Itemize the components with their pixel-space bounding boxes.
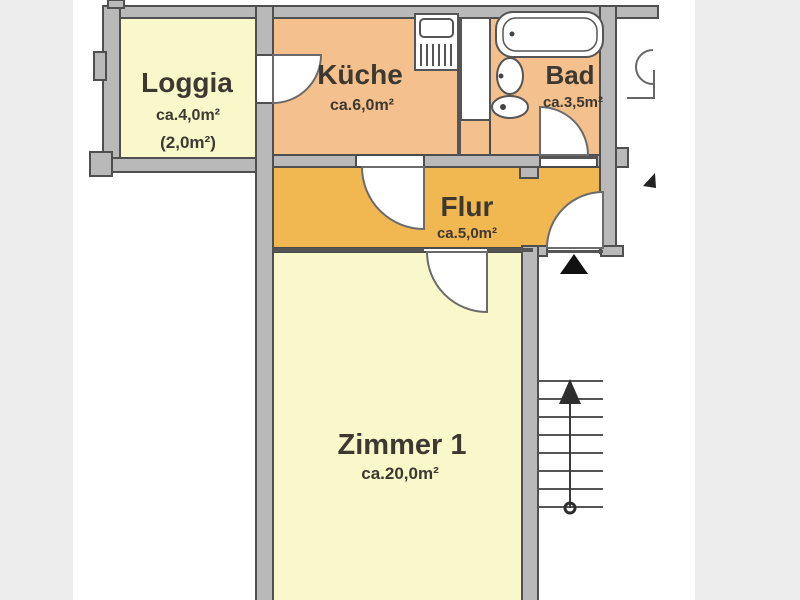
wall-right-junction xyxy=(616,148,628,167)
wall-flur-bottom-right xyxy=(601,246,623,256)
wall-flur-top-left xyxy=(273,155,356,167)
label-zimmer1-name: Zimmer 1 xyxy=(338,429,467,461)
wall-flur-top-right xyxy=(597,155,600,167)
label-flur-name: Flur xyxy=(441,191,494,222)
kitchen-unit-icon xyxy=(415,14,458,70)
installation-shaft xyxy=(461,18,490,120)
line-flur-zimmer-right xyxy=(487,248,533,252)
wall-vertical-main-lower xyxy=(256,103,273,600)
line-flur-zimmer-left xyxy=(273,248,424,252)
wall-tick-left xyxy=(94,52,106,80)
wall-tick-top xyxy=(108,0,124,8)
bathtub-icon xyxy=(496,12,603,57)
label-loggia-area: ca.4,0m² xyxy=(156,107,220,124)
label-bad-name: Bad xyxy=(545,60,594,90)
wall-flur-top-mid xyxy=(424,155,540,167)
label-kueche-name: Küche xyxy=(317,59,403,90)
label-flur-area: ca.5,0m² xyxy=(437,225,497,242)
room-bad-passage xyxy=(461,120,490,156)
floorplan-drawing: Loggia ca.4,0m² (2,0m²) Küche ca.6,0m² B… xyxy=(0,0,800,600)
wall-loggia-bottom xyxy=(103,158,256,172)
label-loggia-name: Loggia xyxy=(141,67,233,98)
wall-tick-corner xyxy=(90,152,112,176)
label-bad-area: ca.3,5m² xyxy=(543,94,603,111)
line-entry-threshold xyxy=(547,250,603,253)
wall-zimmer-right xyxy=(522,246,538,600)
wall-flur-stub xyxy=(520,167,538,178)
label-zimmer1-area: ca.20,0m² xyxy=(361,464,439,483)
washbasin-icon xyxy=(497,58,523,94)
toilet-icon xyxy=(492,96,528,118)
label-kueche-area: ca.6,0m² xyxy=(330,97,394,114)
label-loggia-area-secondary: (2,0m²) xyxy=(160,133,216,152)
floorplan-page: Loggia ca.4,0m² (2,0m²) Küche ca.6,0m² B… xyxy=(0,0,800,600)
wall-vertical-main-upper xyxy=(256,6,273,55)
wall-loggia-left xyxy=(103,6,120,172)
